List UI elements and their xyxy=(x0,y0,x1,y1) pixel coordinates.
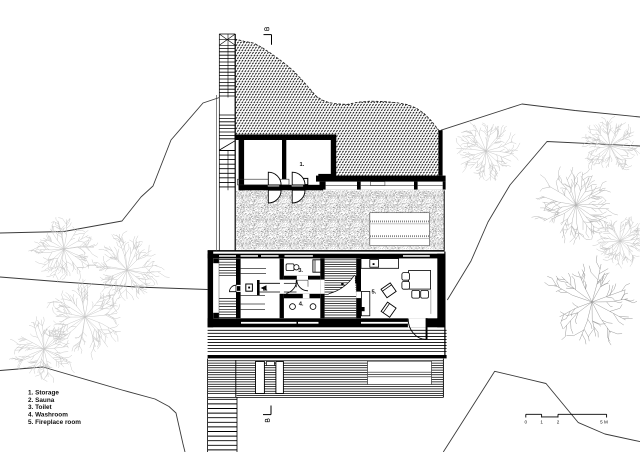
svg-text:3. Toilet: 3. Toilet xyxy=(28,404,53,411)
svg-text:5. Fireplace room: 5. Fireplace room xyxy=(28,419,81,426)
svg-text:5 M: 5 M xyxy=(600,420,608,425)
svg-text:1: 1 xyxy=(540,420,543,425)
svg-text:4. Washroom: 4. Washroom xyxy=(28,412,68,419)
svg-text:2. Sauna: 2. Sauna xyxy=(28,397,55,404)
svg-text:5.: 5. xyxy=(372,290,377,296)
svg-text:1. Storage: 1. Storage xyxy=(28,390,59,397)
svg-text:3.: 3. xyxy=(298,268,303,274)
svg-text:1.: 1. xyxy=(300,162,305,168)
svg-text:0: 0 xyxy=(525,420,528,425)
svg-text:2: 2 xyxy=(557,420,560,425)
svg-text:4.: 4. xyxy=(299,301,304,307)
svg-text:2.: 2. xyxy=(263,287,268,293)
